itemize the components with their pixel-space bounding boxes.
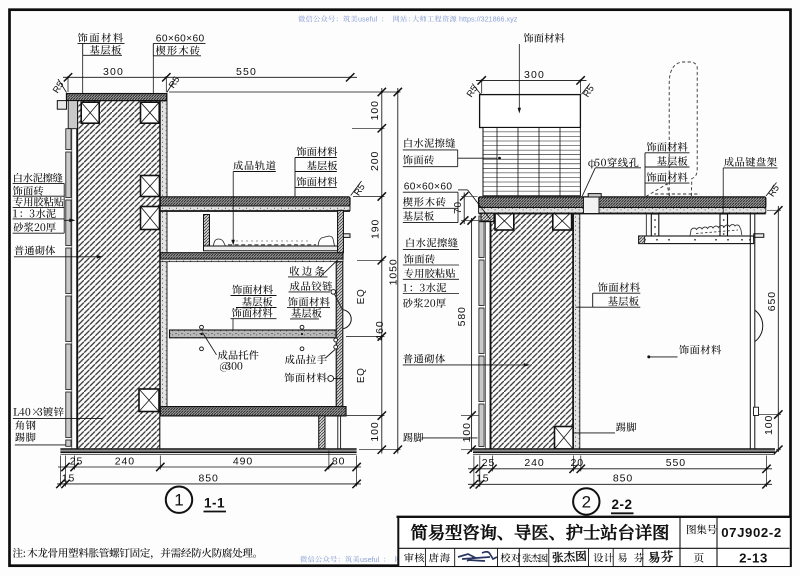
svg-text:1-1: 1-1 (204, 495, 225, 510)
svg-text:useful: useful (360, 555, 380, 564)
svg-text:https://321866.xyz: https://321866.xyz (459, 15, 518, 24)
svg-text:1050: 1050 (388, 258, 400, 285)
svg-text:240: 240 (524, 457, 544, 469)
svg-text:100: 100 (369, 100, 381, 120)
svg-text:EQ: EQ (356, 289, 367, 305)
svg-text:70: 70 (453, 201, 464, 214)
svg-text:240: 240 (115, 455, 135, 467)
svg-text:460: 460 (374, 320, 386, 340)
svg-text:300: 300 (103, 66, 124, 78)
svg-text:100: 100 (369, 421, 381, 441)
svg-text:EQ: EQ (356, 367, 367, 383)
svg-text:07J902-2: 07J902-2 (721, 525, 782, 540)
svg-text:190: 190 (369, 219, 381, 239)
svg-text:1: 1 (174, 491, 183, 510)
svg-text:25: 25 (482, 457, 495, 469)
svg-text:550: 550 (666, 457, 686, 469)
svg-text:25: 25 (70, 455, 83, 467)
svg-text:useful: useful (358, 15, 378, 24)
svg-text:20: 20 (570, 457, 583, 469)
svg-text:850: 850 (198, 472, 218, 484)
svg-text:2-2: 2-2 (611, 497, 632, 512)
svg-text:60×60×60: 60×60×60 (404, 182, 453, 193)
svg-text:490: 490 (233, 455, 253, 467)
svg-text:2: 2 (582, 492, 591, 511)
svg-text:200: 200 (369, 151, 381, 171)
svg-text:15: 15 (62, 472, 75, 484)
svg-text:650: 650 (766, 291, 778, 311)
svg-text:80: 80 (332, 455, 345, 467)
svg-text:2-13: 2-13 (739, 550, 768, 565)
svg-text:300: 300 (524, 69, 545, 81)
svg-text:15: 15 (476, 473, 489, 485)
svg-text:850: 850 (613, 473, 633, 485)
svg-text:100: 100 (461, 422, 473, 442)
svg-text:550: 550 (236, 66, 257, 78)
svg-text:60×60×60: 60×60×60 (156, 33, 205, 44)
svg-text:100: 100 (763, 415, 775, 435)
svg-text:580: 580 (456, 306, 468, 326)
